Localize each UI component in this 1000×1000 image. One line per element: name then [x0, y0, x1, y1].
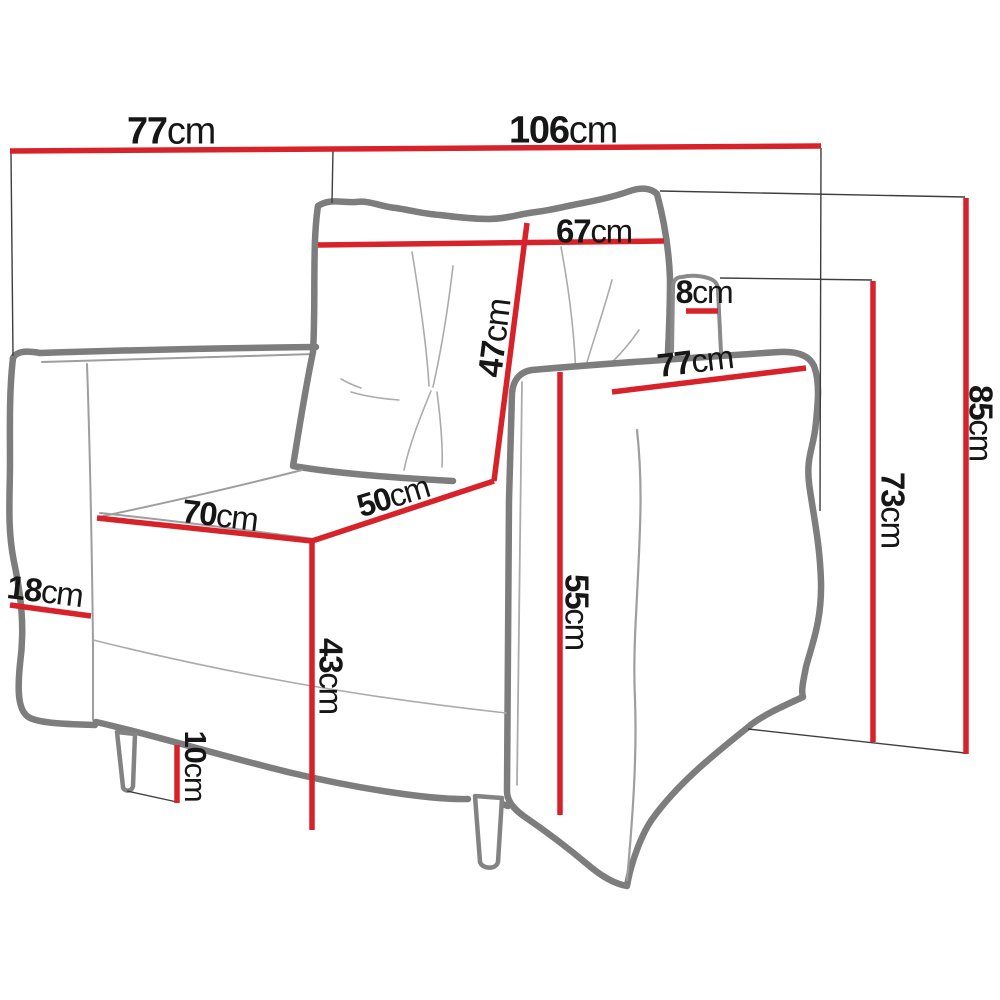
dimension-label-back-width-77: 77cm: [127, 110, 215, 152]
base-bottom-edge: [96, 722, 468, 799]
right-armrest: [507, 352, 821, 886]
dimension-label-backrest-height-73: 73cm: [874, 472, 911, 548]
dimension-label-cushion-width-67: 67cm: [556, 213, 632, 250]
back-panel-inner-top-line: [42, 354, 314, 362]
extension-line-1: [332, 149, 333, 203]
extension-line-6: [127, 791, 177, 802]
dimension-label-leg-height-10: 10cm: [178, 730, 213, 801]
base-seam-line: [93, 640, 506, 713]
dimension-label-headrest-depth-8: 8cm: [676, 274, 733, 310]
dimension-label-total-width-106: 106cm: [509, 109, 617, 151]
dimension-label-seat-width-70: 70cm: [180, 492, 260, 538]
left-armrest-inner-edge: [87, 364, 93, 720]
extension-line-2: [820, 148, 821, 511]
dimension-label-seat-height-43: 43cm: [312, 638, 349, 714]
extension-line-0: [11, 153, 13, 356]
armchair-dimensions-diagram: 77cm106cm67cm47cm8cm77cm70cm50cm43cm18cm…: [0, 0, 1000, 1000]
front-right-leg: [475, 796, 502, 868]
extension-line-5: [748, 729, 965, 753]
dimension-label-cushion-height-47: 47cm: [471, 297, 518, 379]
dimension-label-total-height-85: 85cm: [962, 385, 999, 461]
extension-line-4: [720, 278, 872, 280]
dimension-label-side-front-height-55: 55cm: [558, 574, 595, 650]
diagram-canvas: 77cm106cm67cm47cm8cm77cm70cm50cm43cm18cm…: [0, 0, 1000, 1000]
left-leg: [117, 732, 135, 791]
left-armrest-outer-edge: [9, 358, 95, 725]
extension-line-3: [660, 191, 965, 197]
